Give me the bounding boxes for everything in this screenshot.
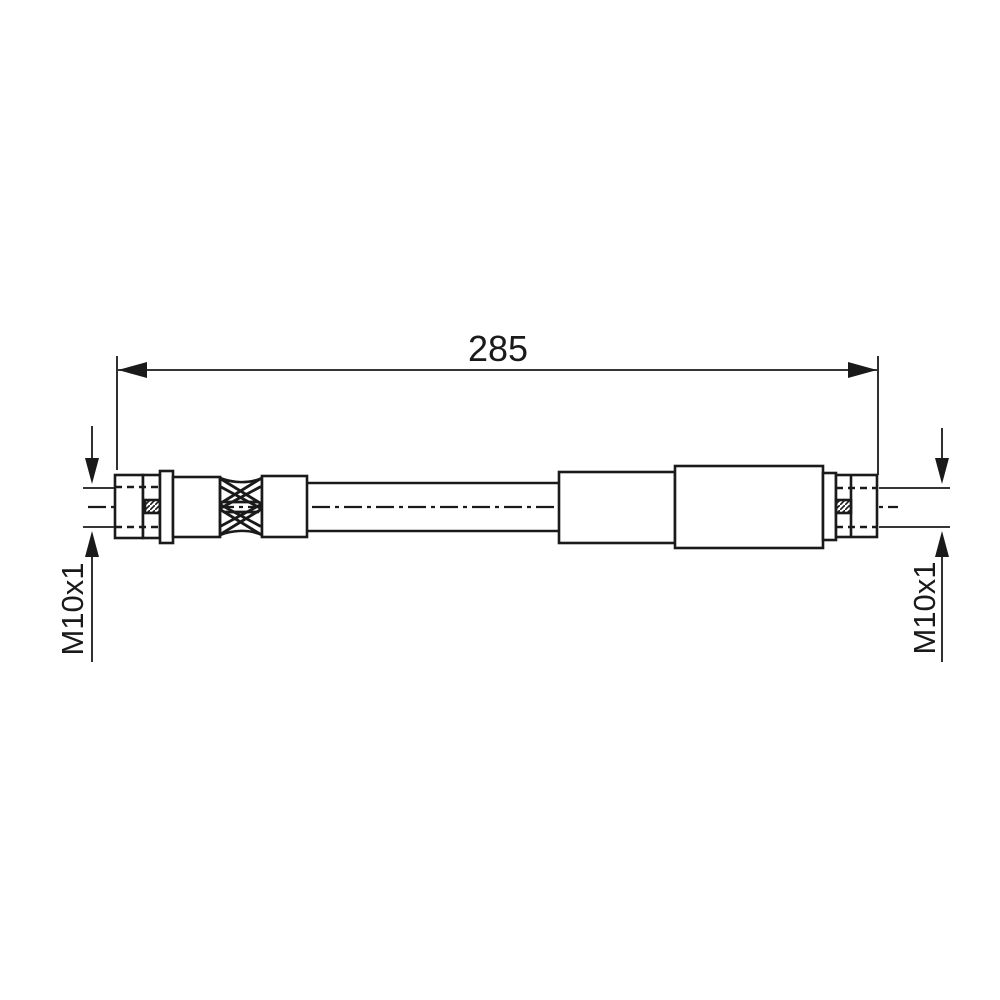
right-thread-callout: M10x1 (879, 428, 950, 662)
brake-hose-diagram: 285 (0, 0, 1000, 1000)
right-lower-arrow-icon (935, 531, 949, 557)
left-threaded-nipple (115, 475, 143, 538)
dimension-length-label: 285 (468, 328, 528, 369)
dimension-arrow-left-icon (118, 362, 147, 378)
left-sleeve (262, 476, 307, 537)
technical-drawing-canvas: 285 (0, 0, 1000, 1000)
left-lower-arrow-icon (85, 531, 99, 557)
right-inner-sleeve (559, 472, 675, 543)
right-upper-arrow-icon (935, 458, 949, 484)
left-body (173, 477, 220, 537)
right-fitting (559, 466, 877, 548)
right-seal-hatch (836, 500, 851, 513)
left-seal-hatch (145, 500, 160, 513)
dimension-arrow-right-icon (848, 362, 877, 378)
left-collar (160, 471, 173, 543)
right-thread-label: M10x1 (907, 561, 942, 654)
overall-length-dimension: 285 (117, 328, 878, 475)
left-fitting (115, 471, 307, 543)
left-thread-callout: M10x1 (55, 426, 115, 662)
right-outer-body (675, 466, 823, 548)
left-thread-label: M10x1 (55, 562, 90, 655)
right-step-ring (823, 473, 836, 540)
left-upper-arrow-icon (85, 458, 99, 484)
